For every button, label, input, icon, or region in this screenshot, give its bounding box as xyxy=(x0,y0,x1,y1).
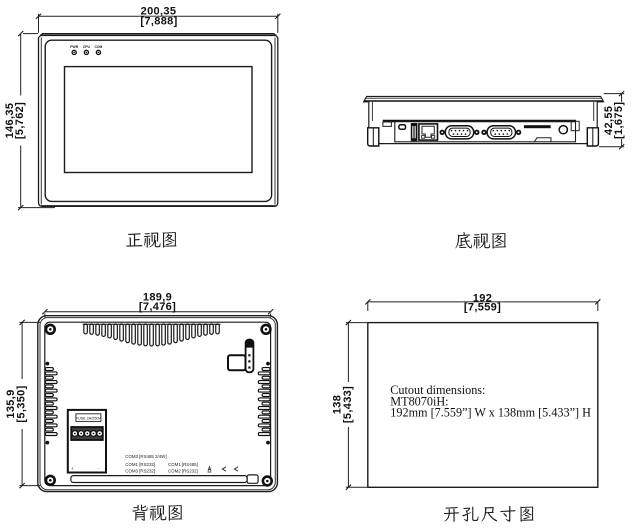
svg-text:[5,762]: [5,762] xyxy=(14,102,26,139)
svg-text:COM2 [RS232]: COM2 [RS232] xyxy=(168,469,198,474)
svg-text:[5,433]: [5,433] xyxy=(342,386,354,423)
svg-text:COM1 [RS232]: COM1 [RS232] xyxy=(125,462,155,467)
svg-text:+: + xyxy=(71,466,74,471)
svg-text:CPU: CPU xyxy=(83,45,91,49)
svg-text:COM1 [RS485]: COM1 [RS485] xyxy=(168,462,198,467)
svg-text:[5,350]: [5,350] xyxy=(15,385,27,422)
svg-text:FUSE 2A/250V: FUSE 2A/250V xyxy=(76,416,102,420)
svg-text:[1,675]: [1,675] xyxy=(613,102,625,139)
svg-text:COM3 [RS485 2/4W]: COM3 [RS485 2/4W] xyxy=(125,454,166,459)
svg-text:192mm [7.559”] W x 138mm [5.43: 192mm [7.559”] W x 138mm [5.433”] H xyxy=(390,406,591,420)
svg-text:[7,559]: [7,559] xyxy=(464,302,501,314)
svg-text:COM: COM xyxy=(94,45,102,49)
svg-text:[7,888]: [7,888] xyxy=(140,15,177,27)
svg-text:[7,476]: [7,476] xyxy=(139,301,176,313)
svg-text:COM3 [RS232]: COM3 [RS232] xyxy=(125,469,155,474)
svg-text:PWR: PWR xyxy=(70,45,78,49)
